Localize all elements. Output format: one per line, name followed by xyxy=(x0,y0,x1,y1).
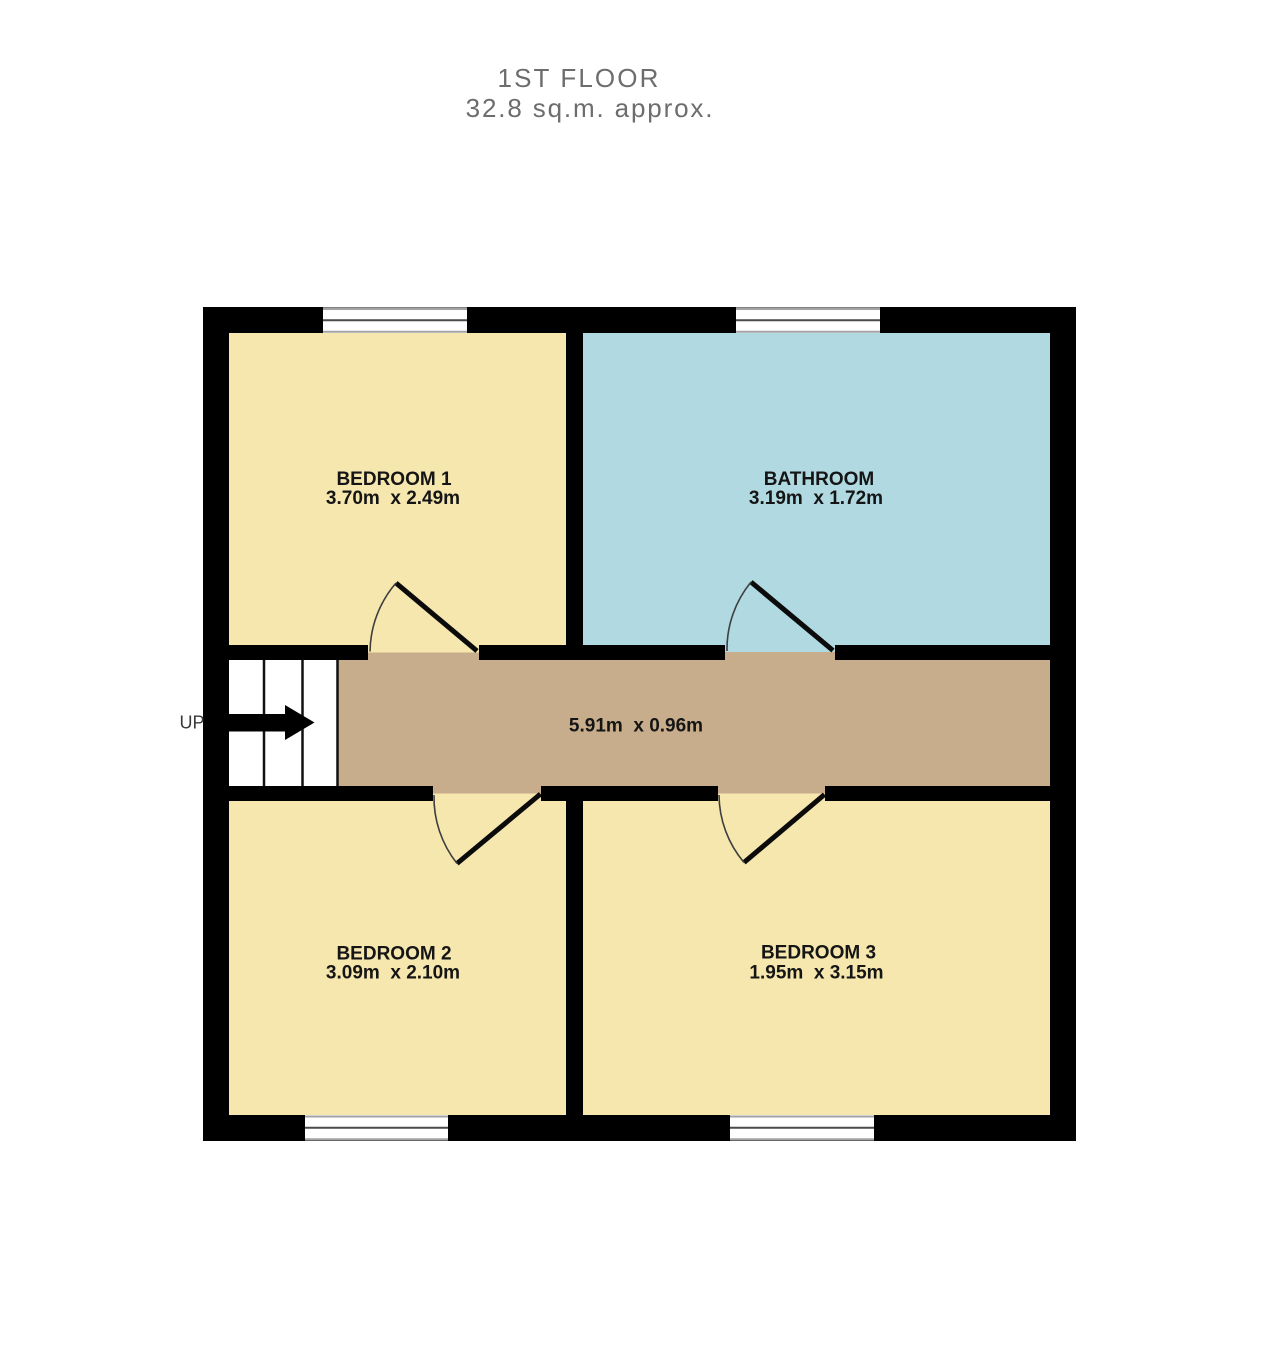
svg-text:BEDROOM 1: BEDROOM 1 xyxy=(336,469,452,490)
svg-text:32.8 sq.m. approx.: 32.8 sq.m. approx. xyxy=(466,93,715,123)
svg-text:BEDROOM 3: BEDROOM 3 xyxy=(761,943,876,964)
svg-text:3.09m x 2.10m: 3.09m x 2.10m xyxy=(326,963,460,984)
svg-text:BEDROOM 2: BEDROOM 2 xyxy=(336,944,451,965)
svg-text:1ST FLOOR: 1ST FLOOR xyxy=(498,63,661,93)
svg-text:BATHROOM: BATHROOM xyxy=(764,469,874,490)
svg-text:3.70m x 2.49m: 3.70m x 2.49m xyxy=(326,488,460,509)
svg-text:3.19m x 1.72m: 3.19m x 1.72m xyxy=(749,488,883,509)
svg-text:UP: UP xyxy=(179,713,204,733)
svg-text:1.95m x 3.15m: 1.95m x 3.15m xyxy=(749,963,883,984)
svg-text:5.91m x 0.96m: 5.91m x 0.96m xyxy=(569,716,703,737)
